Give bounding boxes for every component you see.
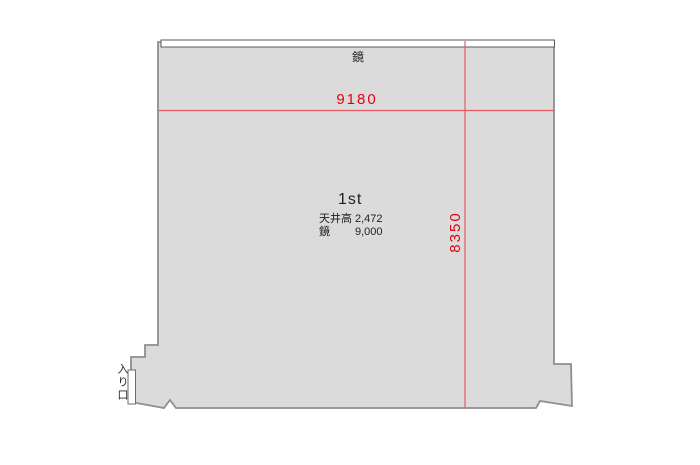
depth-dimension-value: 8350: [447, 202, 463, 262]
mirror-strip: [161, 40, 555, 47]
floorplan-canvas: 鏡 9180 8350 1st 天井高2,472 鏡9,000 入り口: [0, 0, 700, 465]
ceiling-height-value: 2,472: [355, 213, 383, 225]
ceiling-height-label: 天井高: [319, 213, 355, 226]
spec-row-ceiling-height: 天井高2,472: [319, 213, 383, 226]
room-specs: 天井高2,472 鏡9,000: [319, 213, 383, 239]
mirror-width-value: 9,000: [355, 226, 383, 238]
room-name: 1st: [338, 191, 362, 209]
spec-row-mirror-width: 鏡9,000: [319, 226, 383, 239]
mirror-width-label: 鏡: [319, 226, 355, 239]
entrance-label: 入り口: [114, 363, 130, 402]
width-dimension-value: 9180: [320, 91, 394, 108]
mirror-label: 鏡: [345, 48, 371, 65]
